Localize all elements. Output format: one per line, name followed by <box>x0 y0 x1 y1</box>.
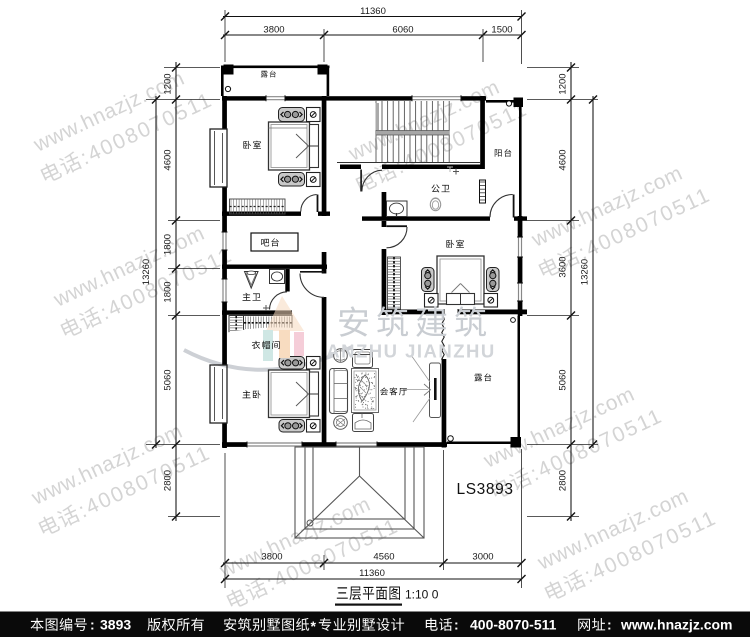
svg-text:ANZHU JIANZHU: ANZHU JIANZHU <box>326 341 496 362</box>
svg-text:2800: 2800 <box>558 470 569 491</box>
svg-text:1200: 1200 <box>558 73 569 94</box>
svg-text:4600: 4600 <box>163 149 174 170</box>
svg-text:3000: 3000 <box>472 552 493 563</box>
svg-text:11360: 11360 <box>360 6 386 17</box>
svg-text:13260: 13260 <box>580 259 591 285</box>
svg-text::: : <box>607 617 612 633</box>
svg-text:3800: 3800 <box>263 25 284 36</box>
svg-text:1800: 1800 <box>163 234 174 255</box>
svg-text:6060: 6060 <box>392 25 413 36</box>
svg-text:13260: 13260 <box>141 259 152 285</box>
svg-text:1200: 1200 <box>163 73 174 94</box>
svg-text:3800: 3800 <box>261 552 282 563</box>
svg-text:5060: 5060 <box>163 369 174 390</box>
svg-text:400-8070-511: 400-8070-511 <box>470 617 557 633</box>
svg-text:LS3893: LS3893 <box>457 481 514 498</box>
svg-text:3893: 3893 <box>100 617 131 633</box>
svg-text:4600: 4600 <box>558 149 569 170</box>
svg-text:1:10 0: 1:10 0 <box>405 588 439 602</box>
svg-text::: : <box>454 617 459 633</box>
svg-text:4560: 4560 <box>373 552 394 563</box>
svg-text:1800: 1800 <box>163 281 174 302</box>
svg-text::: : <box>90 617 95 633</box>
svg-text:1500: 1500 <box>491 25 512 36</box>
svg-text:2800: 2800 <box>163 470 174 491</box>
svg-text:www.hnazjz.com: www.hnazjz.com <box>620 617 733 633</box>
svg-text:3600: 3600 <box>558 256 569 277</box>
svg-text:11360: 11360 <box>359 568 385 579</box>
svg-text:5060: 5060 <box>558 369 569 390</box>
svg-text:*: * <box>311 618 317 634</box>
